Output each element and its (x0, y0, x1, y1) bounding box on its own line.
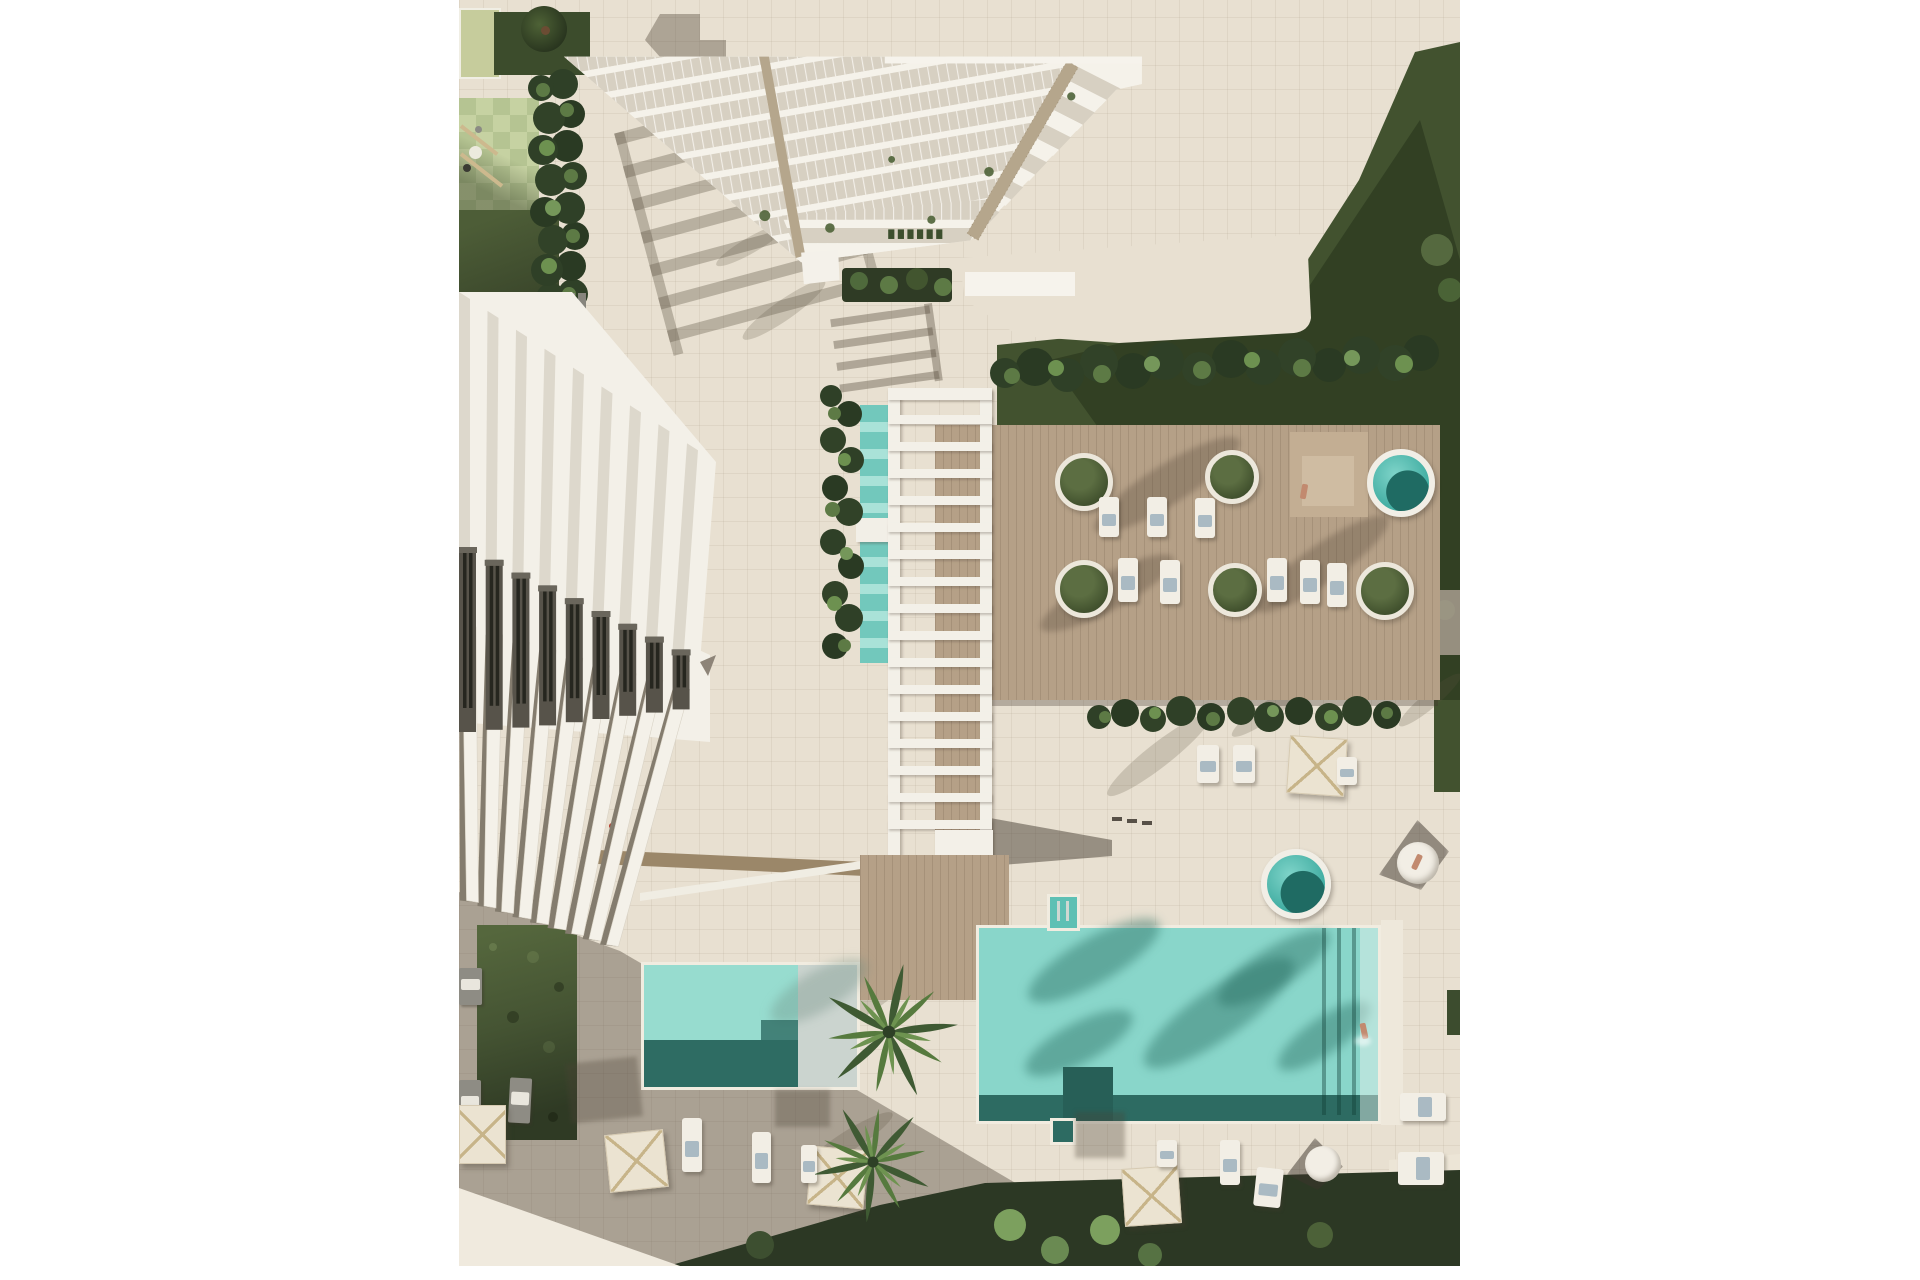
umbrella-pole-icon (1315, 764, 1320, 769)
render-content (459, 0, 1460, 1266)
fence-shadow-line (1322, 928, 1326, 1115)
lounger (1147, 497, 1167, 537)
lounger (1195, 498, 1215, 538)
ladder-icon (1057, 901, 1060, 921)
round-daybed (1397, 842, 1439, 884)
umbrella-shadow (565, 1056, 643, 1123)
hedge-blobs-light (1004, 368, 1020, 384)
leaf-cluster (1307, 1222, 1333, 1248)
round-planter (1205, 450, 1259, 504)
fence-shadow-line (1337, 928, 1341, 1115)
pool-shadow-band (979, 1095, 1378, 1121)
umbrella-pole-icon (481, 1132, 485, 1137)
lounger (1099, 497, 1119, 537)
lounger (1160, 560, 1180, 604)
lounger (1398, 1152, 1444, 1185)
leaf-cluster (1138, 1243, 1162, 1266)
fence-shadow-line (1352, 928, 1356, 1115)
aerial-render-canvas (0, 0, 1920, 1280)
round-planter (1055, 560, 1113, 618)
lounger (682, 1118, 702, 1172)
deck-jacuzzi (1367, 449, 1435, 517)
pergola-rail-right (980, 388, 992, 858)
umbrella (1121, 1165, 1182, 1227)
round-planter (1208, 563, 1262, 617)
leaf-cluster (746, 1231, 774, 1259)
lounger (1157, 1140, 1177, 1167)
palm-shadow-on-water (1208, 917, 1339, 1020)
umbrella-pole-icon (634, 1159, 639, 1164)
steps-marks (1112, 817, 1122, 821)
umbrella-shadow (1075, 1112, 1125, 1158)
lounger (1233, 745, 1255, 783)
ladder-icon (1066, 901, 1069, 921)
tower-building (459, 0, 1460, 360)
kids-pool-shadow-band (644, 1040, 798, 1087)
sunbather-2 (1411, 853, 1423, 870)
roof-parapet (885, 57, 1142, 64)
lounger (752, 1132, 771, 1183)
tower-entrance-canopy (801, 250, 839, 284)
lounger (1220, 1140, 1240, 1185)
round-daybed (1305, 1146, 1341, 1182)
palm-large (815, 950, 969, 1105)
lounger (1267, 558, 1287, 602)
leaf-cluster (1090, 1215, 1120, 1245)
jacuzzi-platform-step (1302, 456, 1354, 506)
pool-ladder-notch-top (1050, 897, 1077, 928)
main-pool (979, 928, 1378, 1121)
hedge-blobs-light (1099, 711, 1111, 723)
chair-with-parasol (1253, 1167, 1284, 1209)
umbrella (459, 1105, 506, 1164)
swim-splash (1355, 1036, 1371, 1046)
lounger (1337, 757, 1357, 785)
round-planter (1356, 562, 1414, 620)
garden-edge-bit (1447, 990, 1460, 1035)
lounger (1400, 1093, 1446, 1121)
lounger (1327, 563, 1347, 607)
terrace-jacuzzi (1261, 849, 1331, 919)
pool-ladder-notch-bottom (1053, 1121, 1073, 1142)
leaf-cluster (1041, 1236, 1069, 1264)
lounger (1197, 745, 1219, 783)
terrace-hedge (1087, 697, 1405, 749)
townhouse-building (459, 270, 919, 1030)
palm-trees (815, 930, 1035, 1240)
lounger-gray (508, 1077, 532, 1123)
lounger (1300, 560, 1320, 604)
lounger (1118, 558, 1138, 602)
umbrella-pole-icon (1149, 1194, 1154, 1199)
palm-small (815, 1080, 951, 1238)
umbrella (604, 1129, 669, 1193)
